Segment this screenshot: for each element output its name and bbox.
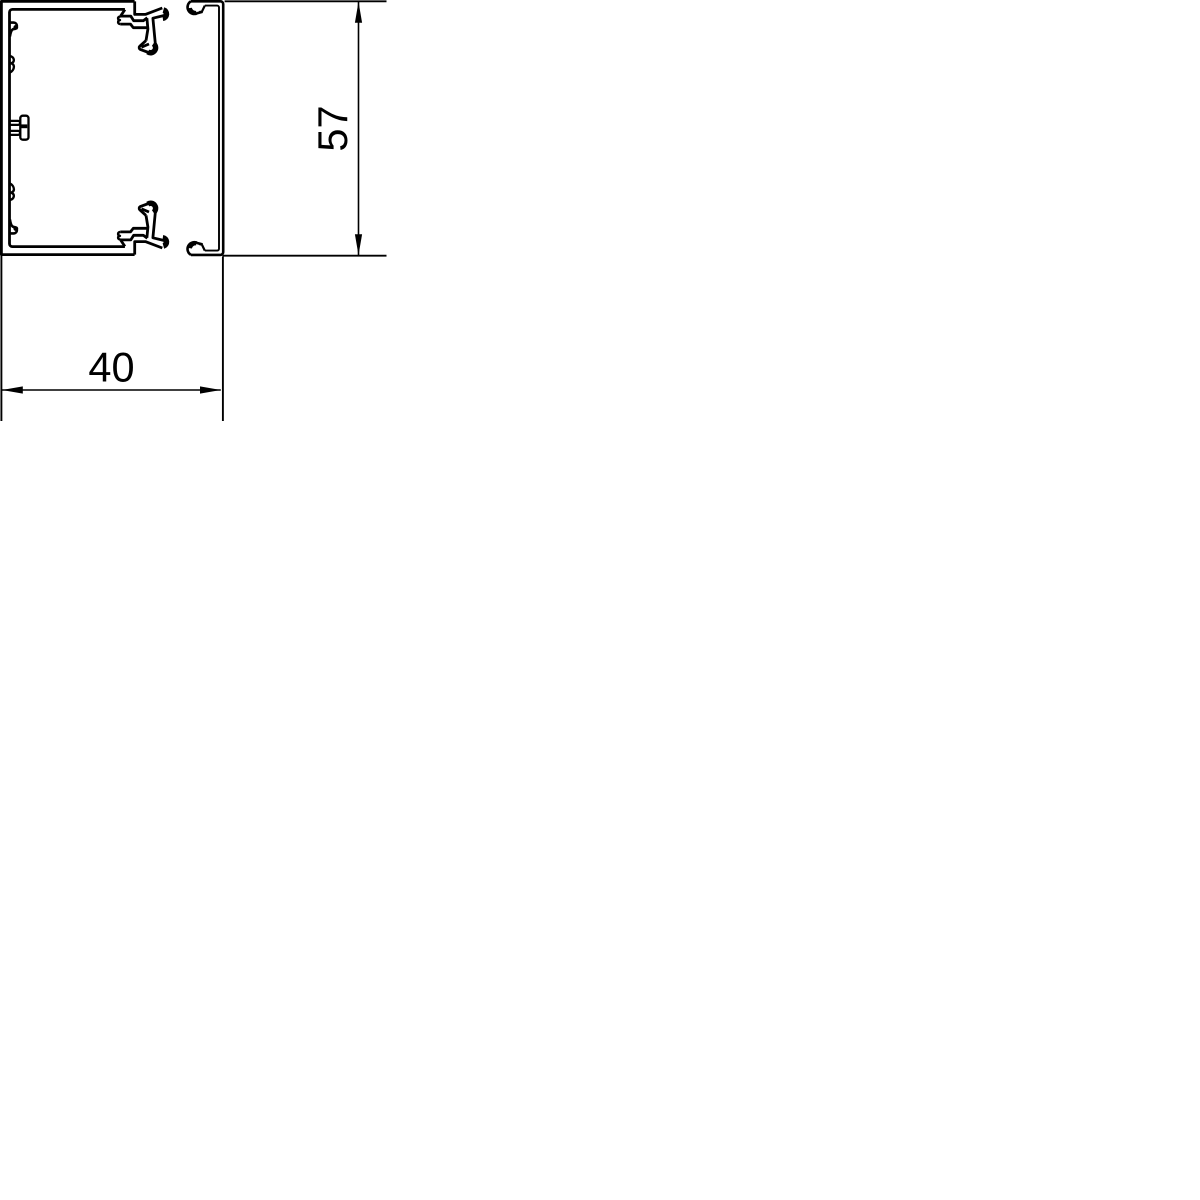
- svg-text:57: 57: [309, 105, 356, 151]
- svg-text:40: 40: [88, 344, 134, 391]
